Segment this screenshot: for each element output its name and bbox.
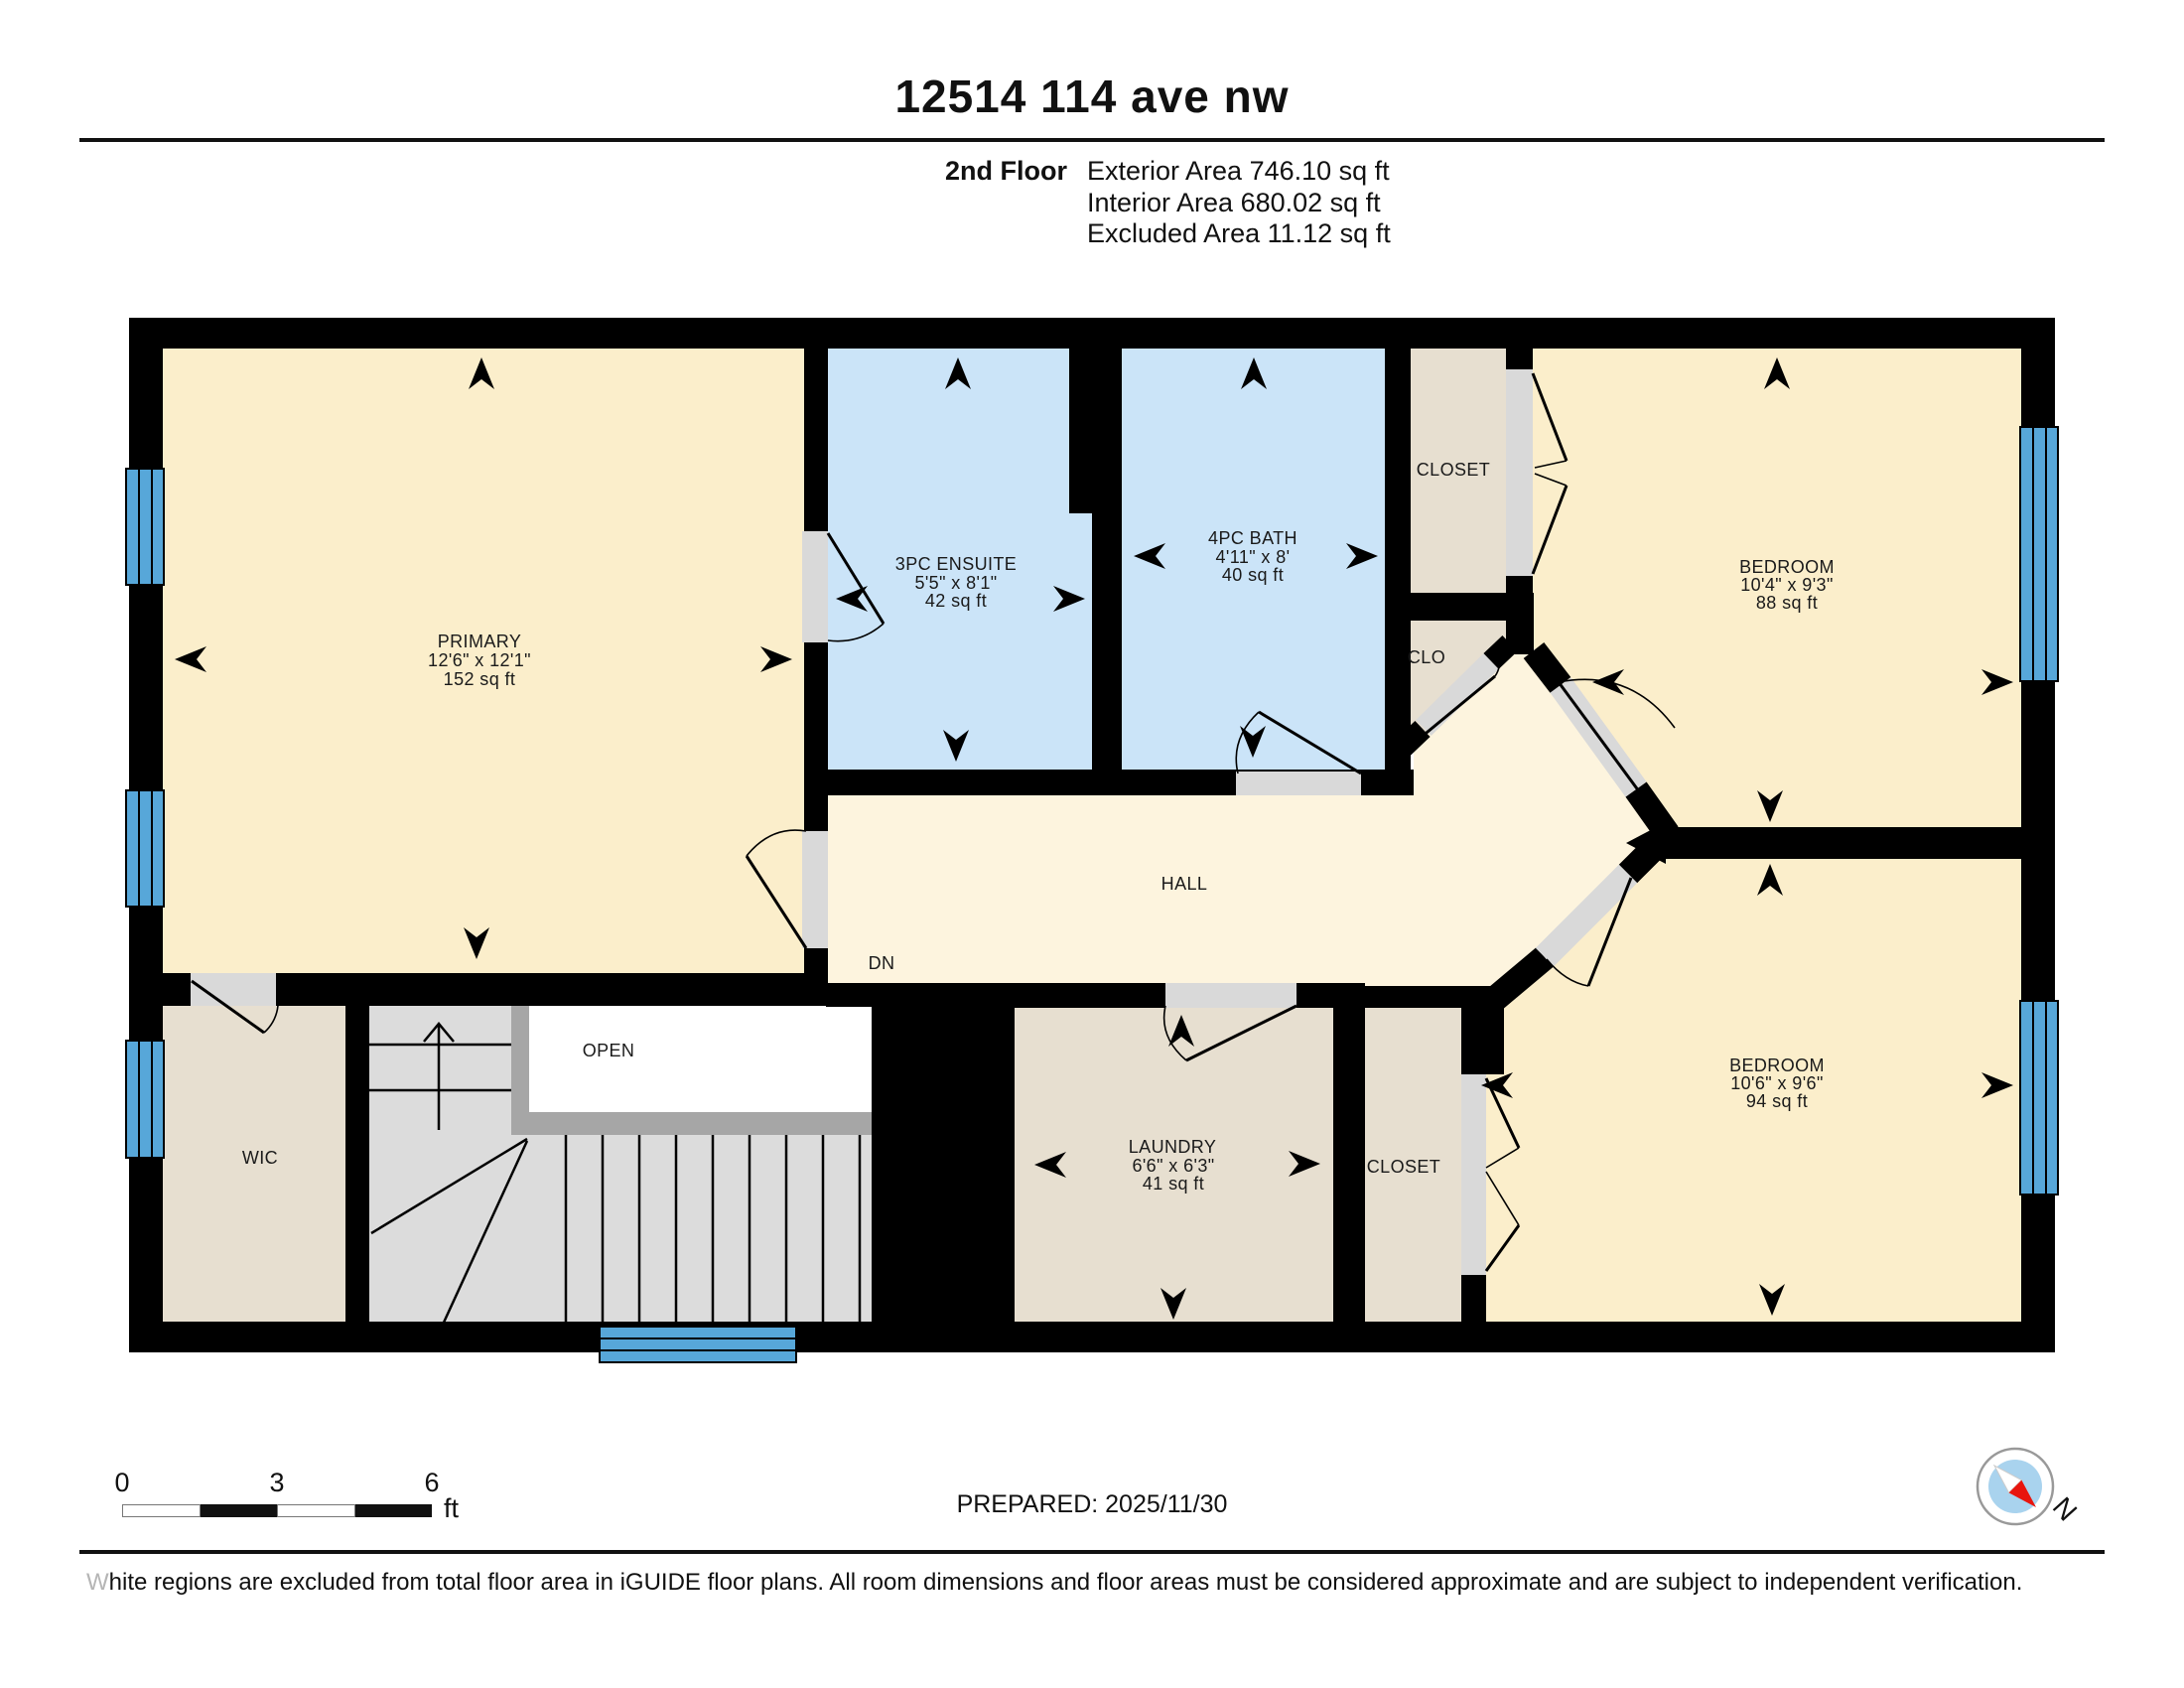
footer-divider (79, 1550, 2105, 1554)
wall-segment (129, 318, 2055, 349)
wall-segment (1069, 348, 1122, 513)
room-dims-bath: 4'11" x 8' (1216, 547, 1291, 567)
room-area-bedroom-upper: 88 sq ft (1756, 593, 1818, 613)
window (600, 1327, 796, 1362)
room-label-primary: PRIMARY (438, 632, 522, 651)
wall-segment (872, 983, 1015, 1352)
wall-segment (129, 1322, 2055, 1352)
door-opening-bath (1236, 772, 1361, 795)
window (126, 790, 164, 907)
window (2020, 1001, 2058, 1195)
room-label-laundry: LAUNDRY (1129, 1137, 1217, 1157)
window (126, 1041, 164, 1158)
stairs-down-label: DN (869, 953, 895, 973)
room-label-clo: CLO (1408, 647, 1445, 667)
door-opening-primary (802, 831, 828, 948)
wall-segment (1092, 511, 1122, 772)
wall-segment (1402, 729, 1423, 749)
room-dims-primary: 12'6" x 12'1" (428, 650, 531, 670)
footer-body: hite regions are excluded from total flo… (109, 1569, 2023, 1596)
room-area-primary: 152 sq ft (444, 669, 516, 689)
door-opening-ensuite (802, 531, 828, 642)
room-label-closet-lower: CLOSET (1367, 1157, 1440, 1177)
door-opening-closet-upper (1506, 369, 1533, 576)
stair-stringer-horizontal (511, 1112, 874, 1135)
stair-landing (367, 1135, 529, 1327)
wall-segment (1461, 1275, 1486, 1325)
room-label-hall: HALL (1161, 874, 1208, 894)
window (2020, 427, 2058, 681)
wall-segment (1333, 983, 1365, 1352)
room-label-bedroom-lower: BEDROOM (1729, 1055, 1825, 1075)
room-dims-ensuite: 5'5" x 8'1" (914, 573, 997, 593)
wall-segment (1015, 983, 1165, 1008)
room-label-bath: 4PC BATH (1208, 528, 1297, 548)
wall-segment (1662, 827, 2021, 859)
room-dims-bedroom-lower: 10'6" x 9'6" (1730, 1073, 1824, 1093)
floor-plan: PRIMARY 12'6" x 12'1" 152 sq ft 3PC ENSU… (0, 0, 2184, 1688)
compass-icon: N (1961, 1435, 2080, 1544)
room-dims-bedroom-upper: 10'4" x 9'3" (1740, 575, 1834, 595)
wall-segment (804, 640, 828, 831)
footer-lead-letter: W (86, 1569, 109, 1596)
door-opening-closet-lower (1461, 1074, 1486, 1275)
wall-segment (1491, 643, 1510, 661)
footer-disclaimer: White regions are excluded from total fl… (86, 1569, 2131, 1597)
room-label-wic: WIC (242, 1148, 278, 1168)
door-opening-laundry (1165, 983, 1297, 1008)
wall-segment (1628, 850, 1652, 874)
room-label-closet-upper: CLOSET (1417, 460, 1490, 480)
room-area-bedroom-lower: 94 sq ft (1746, 1091, 1808, 1111)
room-area-bath: 40 sq ft (1222, 565, 1284, 585)
open-label: OPEN (583, 1041, 635, 1060)
wall-segment (1461, 986, 1504, 1074)
room-area-laundry: 41 sq ft (1143, 1174, 1204, 1194)
open-to-below-area (529, 1006, 874, 1112)
wall-segment (1506, 346, 1533, 371)
room-label-ensuite: 3PC ENSUITE (895, 554, 1017, 574)
wall-segment (1297, 983, 1335, 1008)
room-area-ensuite: 42 sq ft (925, 591, 987, 611)
room-label-bedroom-upper: BEDROOM (1739, 557, 1835, 577)
wall-segment (804, 348, 828, 531)
wall-segment (1506, 574, 1533, 596)
wall-segment (1385, 348, 1411, 772)
wall-segment (1363, 986, 1461, 1008)
room-dims-laundry: 6'6" x 6'3" (1132, 1156, 1214, 1176)
window (126, 469, 164, 585)
wall-segment (345, 1003, 369, 1323)
prepared-date: PREPARED: 2025/11/30 (0, 1490, 2184, 1519)
